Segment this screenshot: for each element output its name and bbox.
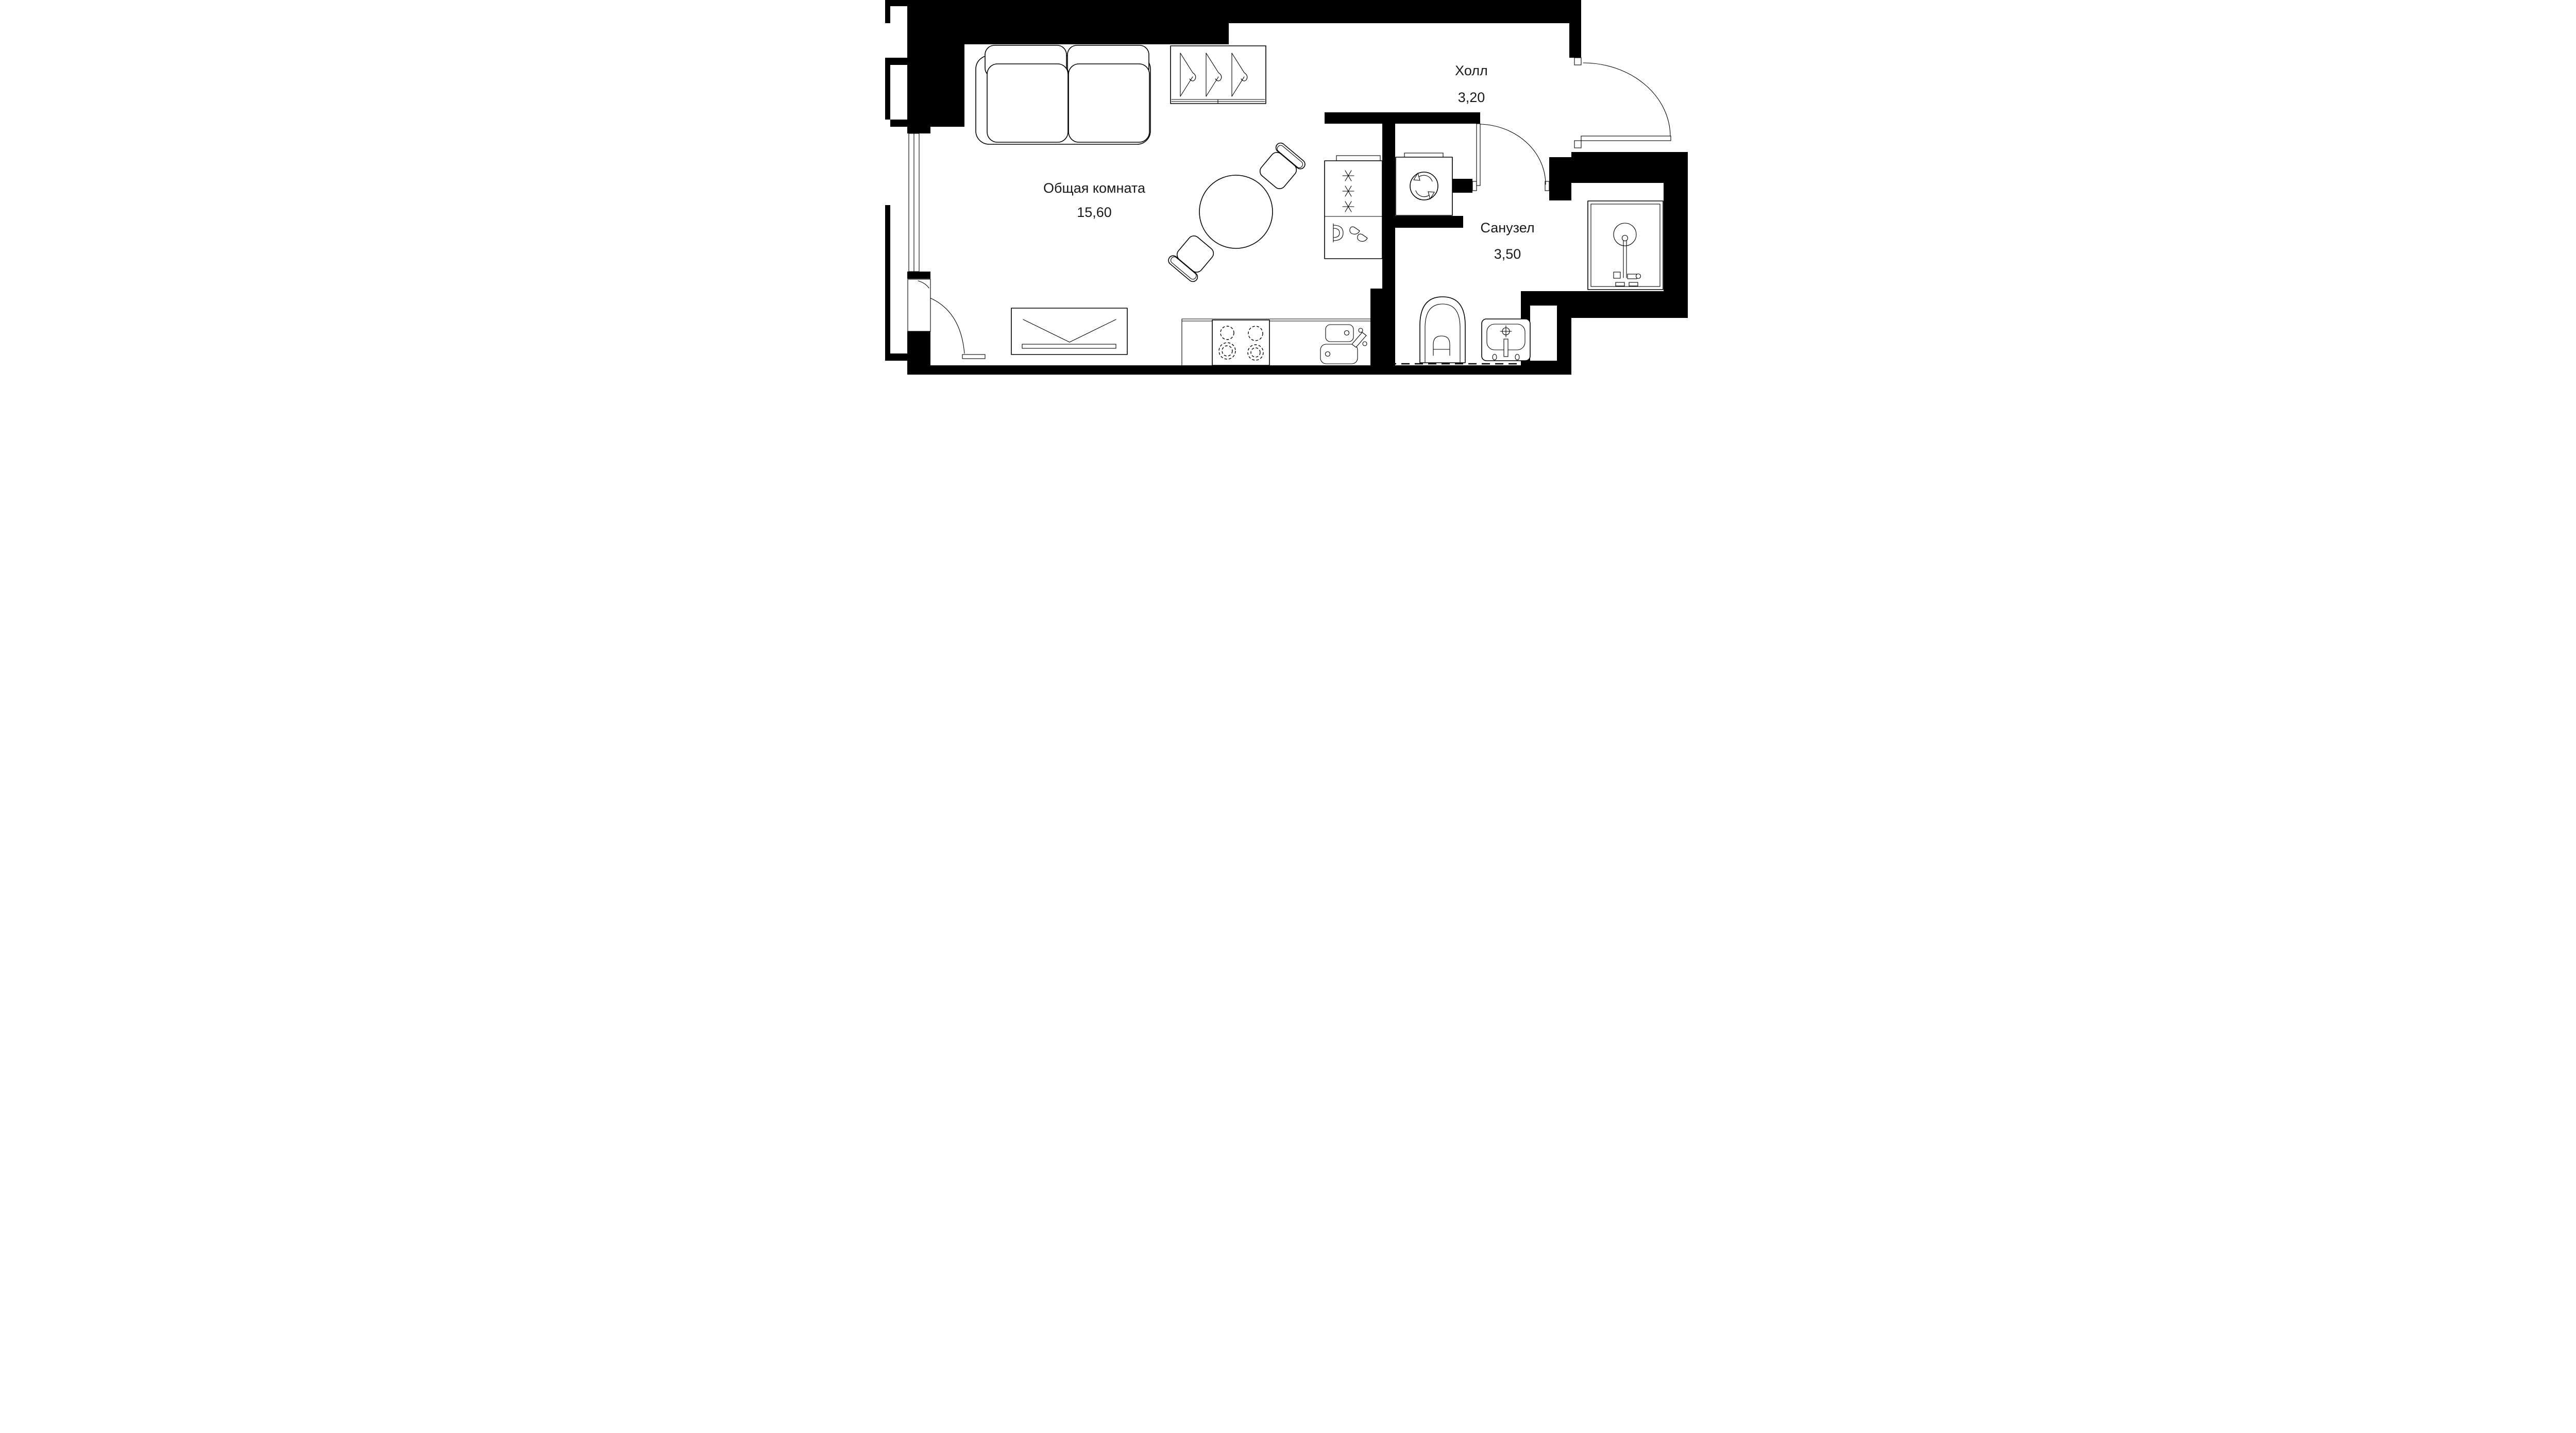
hall-partition-wall — [1325, 112, 1480, 124]
door-leaf — [962, 355, 985, 359]
door-swing-arc — [1480, 124, 1546, 184]
dining-set — [1166, 141, 1307, 283]
chair — [1166, 232, 1218, 283]
bathroom-area: 3,50 — [1494, 246, 1521, 262]
top-wall-thick — [964, 0, 1229, 44]
chair — [1256, 141, 1307, 193]
living-room-label: Общая комната — [1043, 180, 1146, 196]
hall-area: 3,20 — [1458, 90, 1485, 105]
entrance-door — [1574, 58, 1671, 148]
faucet-icon — [1352, 332, 1366, 347]
wash-basin — [1482, 319, 1530, 361]
tv-stand — [1011, 308, 1127, 355]
bottom-wall — [907, 365, 1521, 375]
hall-label: Холл — [1455, 63, 1488, 78]
stove — [1212, 320, 1269, 365]
door-swing-arc — [931, 298, 964, 353]
duct-niche — [1530, 306, 1557, 361]
entry-pier — [1569, 0, 1581, 58]
shower-head-icon — [1614, 223, 1636, 246]
kitchen-bath-wall — [1382, 124, 1395, 366]
sink-bowl — [1320, 344, 1358, 364]
floor-plan: Общая комната 15,60 Холл 3,20 Санузел 3,… — [884, 0, 1692, 375]
shower-cabin — [1588, 201, 1663, 290]
door-swing-arc — [1583, 63, 1670, 137]
bath-door-pier — [1549, 157, 1571, 200]
bathroom-door — [1472, 124, 1549, 191]
window — [909, 133, 919, 272]
sofa-seat-cushion — [1069, 64, 1149, 142]
sofa — [976, 45, 1150, 144]
refrigerator — [1325, 156, 1382, 259]
toilet — [1420, 297, 1465, 363]
corner-pier — [907, 0, 964, 127]
bath-bottom-wall — [1571, 291, 1688, 318]
kitchen-sink — [1320, 325, 1367, 364]
living-room-area: 15,60 — [1077, 205, 1112, 220]
washing-machine — [1396, 153, 1452, 215]
wardrobe — [1171, 46, 1266, 104]
bathroom-label: Санузел — [1480, 220, 1534, 235]
door-leaf — [1581, 136, 1671, 141]
floor-plan-svg: Общая комната 15,60 Холл 3,20 Санузел 3,… — [884, 0, 1692, 375]
dining-table — [1199, 175, 1273, 248]
door-leaf — [1477, 124, 1480, 186]
sofa-seat-cushion — [987, 64, 1068, 142]
top-wall-thin — [1229, 0, 1574, 23]
washer-niche-wall — [1394, 216, 1463, 228]
